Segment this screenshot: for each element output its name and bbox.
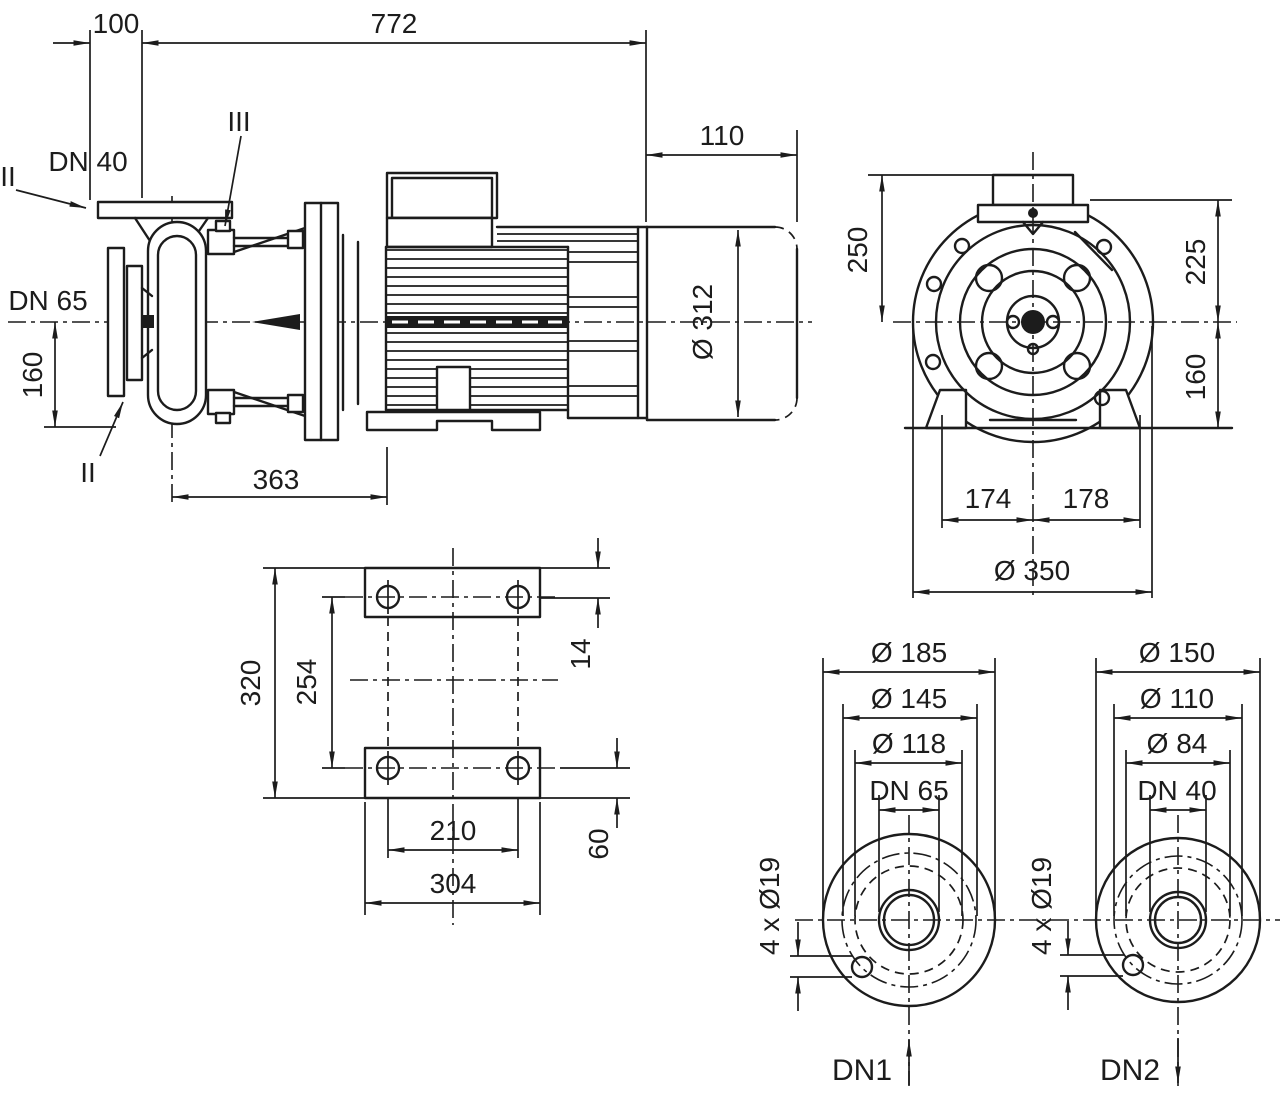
label-section-ii-bottom: II — [80, 457, 96, 488]
motor-foot — [367, 412, 540, 430]
casing-clamp-top — [208, 230, 234, 254]
pump-dimension-drawing: 100 772 110 Ø 312 363 160 DN 40 II III D… — [0, 0, 1280, 1089]
label-dn1-port: DN1 — [832, 1054, 892, 1087]
dim-320: 320 — [235, 660, 266, 707]
dim-dia-350: Ø 350 — [994, 555, 1070, 586]
dim-250: 250 — [842, 227, 873, 274]
vent-plug — [216, 221, 230, 231]
discharge-flange-view: Ø 150 Ø 110 Ø 84 DN 40 4 x Ø19 DN2 — [1026, 637, 1260, 1087]
dim-dia-84: Ø 84 — [1147, 728, 1208, 759]
fan-cover — [647, 227, 797, 420]
bolt-hole — [976, 265, 1002, 291]
dim-225: 225 — [1180, 239, 1211, 286]
dim-110: 110 — [700, 120, 745, 151]
terminal-box-side — [387, 173, 497, 218]
dim-bolt-holes-dn65: 4 x Ø19 — [754, 857, 785, 955]
dim-304: 304 — [430, 868, 477, 899]
label-dn2-port: DN2 — [1100, 1054, 1160, 1087]
dim-178: 178 — [1063, 483, 1110, 514]
casing-clamp-bottom — [208, 390, 234, 414]
baseplate-view: 320 254 14 60 210 304 — [235, 538, 630, 925]
dim-174: 174 — [965, 483, 1012, 514]
front-foot-right — [1100, 390, 1140, 428]
drain-block — [437, 367, 470, 410]
label-section-iii: III — [227, 106, 250, 137]
shaft-end — [252, 314, 300, 330]
front-foot-left — [926, 390, 966, 428]
dim-210: 210 — [430, 815, 477, 846]
dim-bolt-holes-dn40: 4 x Ø19 — [1026, 857, 1057, 955]
tie-rod-nut-top — [288, 231, 303, 248]
dim-160-side: 160 — [17, 352, 48, 399]
discharge-flange — [98, 202, 232, 218]
dim-dia-312: Ø 312 — [687, 284, 718, 360]
dim-254: 254 — [291, 659, 322, 706]
label-dn40-side: DN 40 — [48, 146, 127, 177]
dim-dia-185: Ø 185 — [871, 637, 947, 668]
motor-fins — [386, 247, 638, 418]
dim-dia-118: Ø 118 — [872, 728, 946, 759]
flange-bolt-hole — [1123, 955, 1143, 975]
bolt-hole — [1064, 353, 1090, 379]
tie-rod-nut-bottom — [288, 395, 303, 412]
dim-363: 363 — [253, 464, 300, 495]
bolt-hole — [1064, 265, 1090, 291]
suction-flange — [108, 248, 124, 396]
dim-dia-145: Ø 145 — [871, 683, 947, 714]
suction-hub — [127, 266, 142, 380]
dim-dn65-flange: DN 65 — [869, 775, 948, 806]
dim-14: 14 — [565, 638, 596, 669]
dim-160-front: 160 — [1180, 354, 1211, 401]
dim-100: 100 — [93, 8, 140, 39]
dim-dn40-flange: DN 40 — [1137, 775, 1216, 806]
drawing-canvas: 100 772 110 Ø 312 363 160 DN 40 II III D… — [0, 0, 1280, 1089]
dim-dia-150: Ø 150 — [1139, 637, 1215, 668]
dim-60: 60 — [583, 828, 614, 859]
side-view: 100 772 110 Ø 312 363 160 DN 40 II III D… — [0, 8, 812, 505]
volute-casing — [148, 222, 206, 424]
dim-772: 772 — [371, 8, 418, 39]
front-view: 250 225 160 174 178 Ø 350 — [842, 152, 1237, 598]
label-section-ii-top: II — [0, 161, 16, 192]
dim-dia-110: Ø 110 — [1140, 683, 1214, 714]
flange-bolt-hole — [852, 957, 872, 977]
label-dn65-side: DN 65 — [8, 285, 87, 316]
bolt-hole — [976, 353, 1002, 379]
